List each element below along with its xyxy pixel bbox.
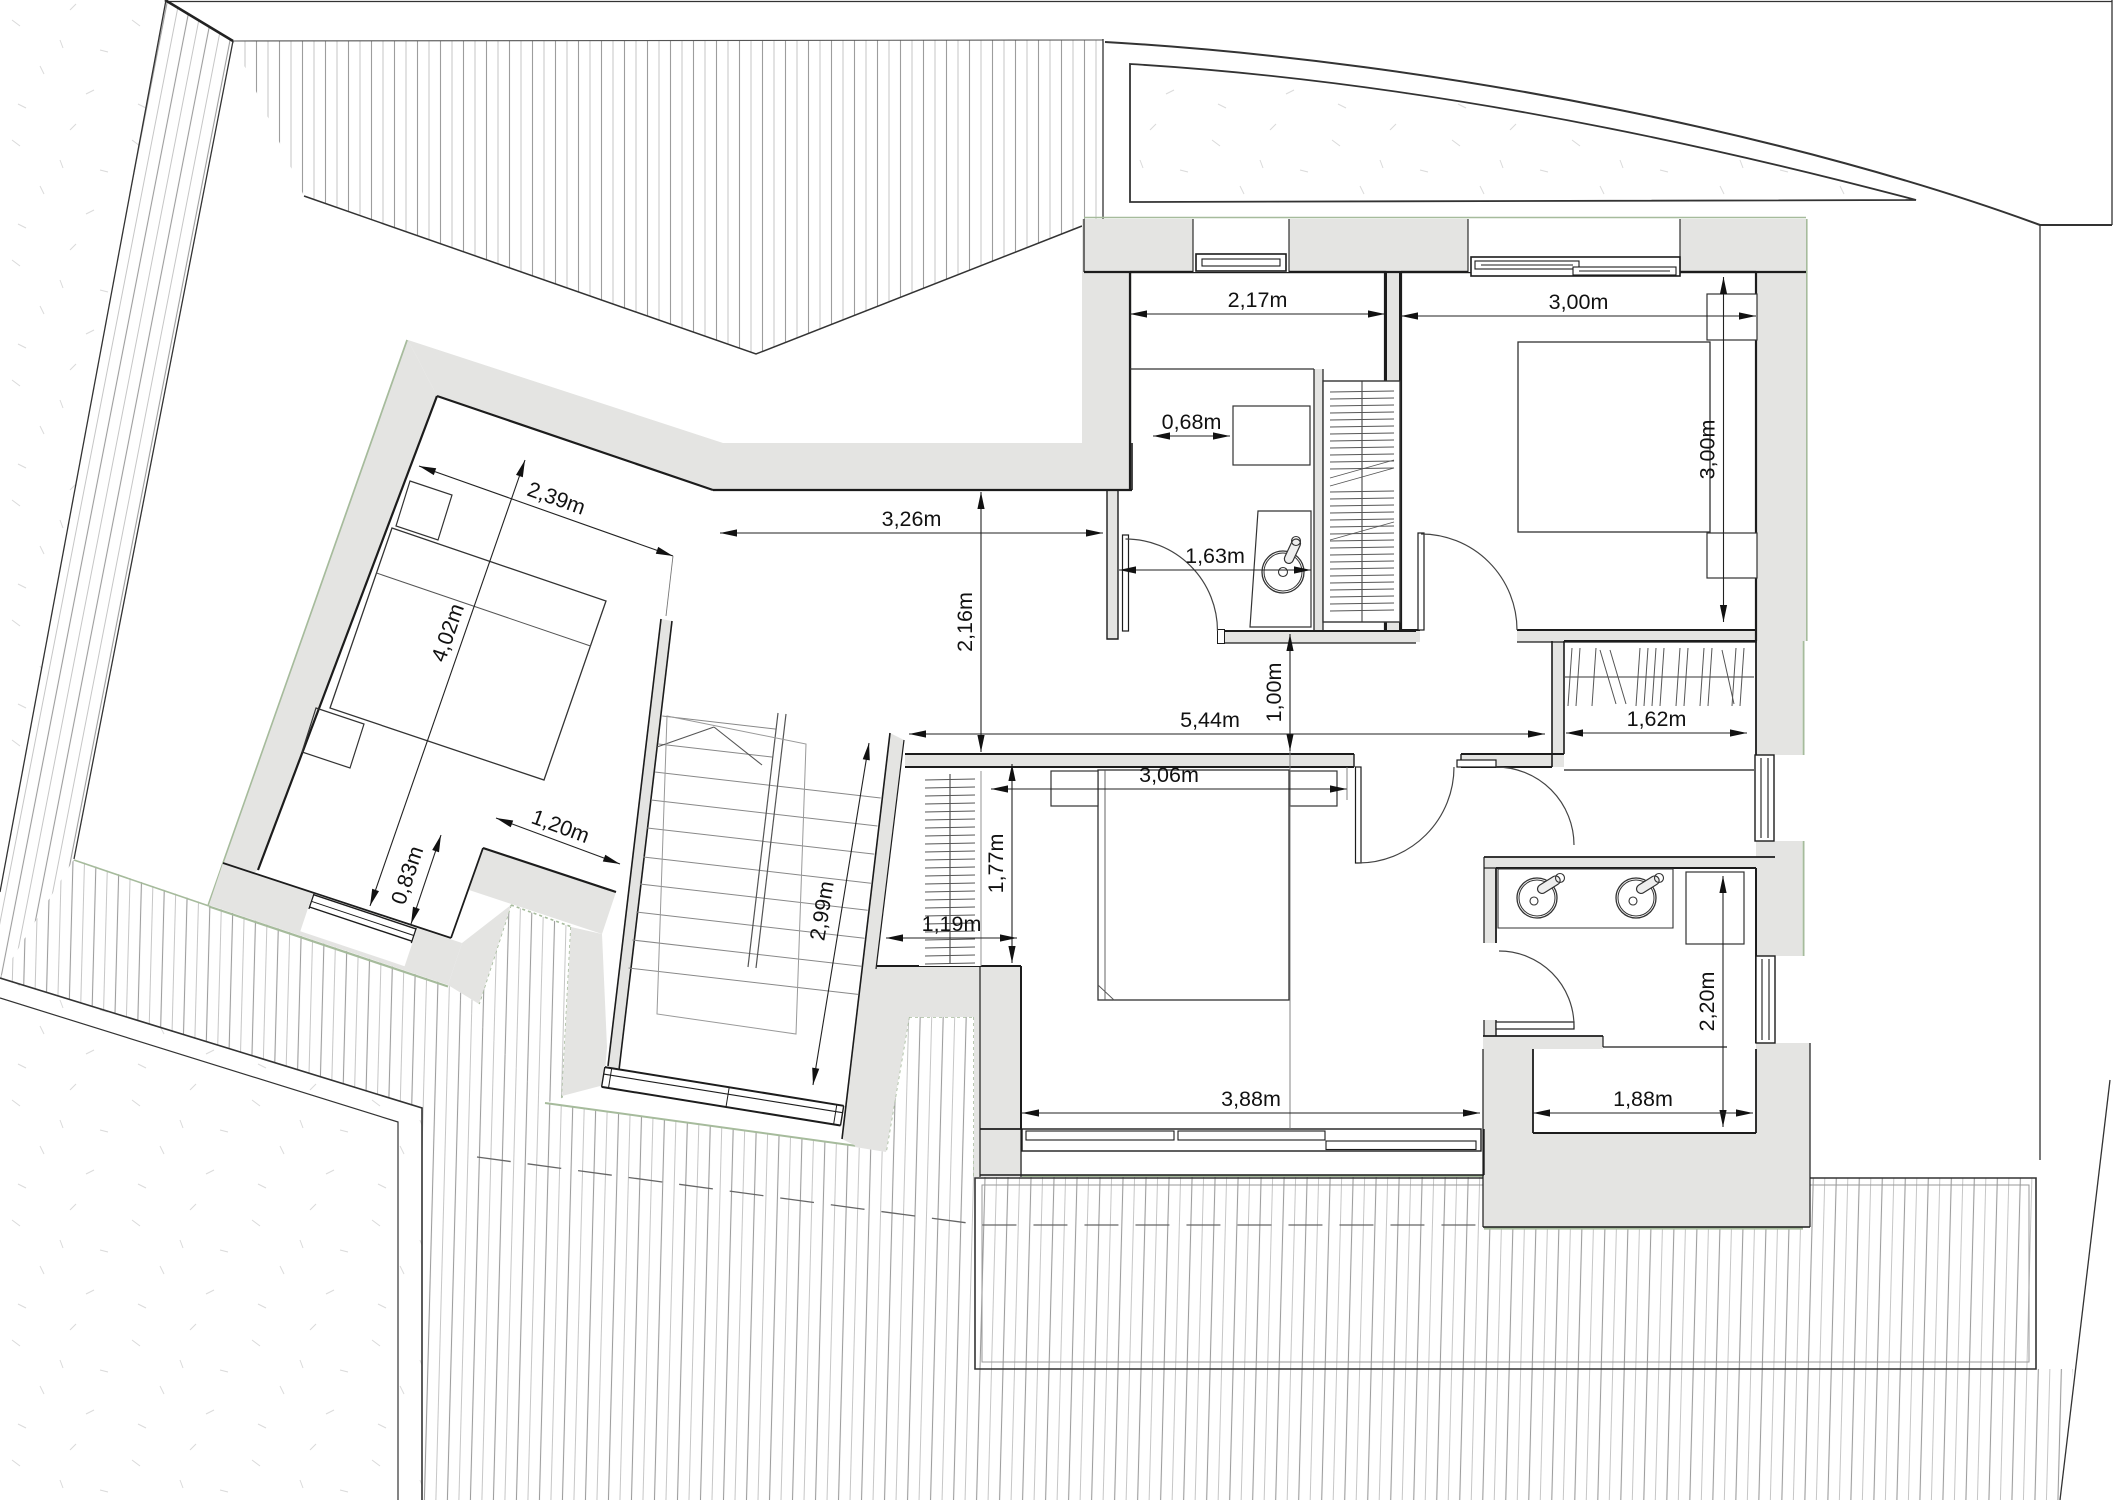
svg-text:1,77m: 1,77m — [984, 834, 1008, 894]
svg-text:1,19m: 1,19m — [922, 912, 982, 936]
svg-text:3,06m: 3,06m — [1139, 763, 1199, 787]
svg-text:1,62m: 1,62m — [1627, 707, 1687, 731]
svg-text:0,68m: 0,68m — [1162, 410, 1222, 434]
svg-text:3,88m: 3,88m — [1221, 1087, 1281, 1111]
svg-text:3,00m: 3,00m — [1696, 420, 1720, 480]
svg-text:1,88m: 1,88m — [1613, 1087, 1673, 1111]
svg-text:3,26m: 3,26m — [882, 507, 942, 531]
svg-text:2,20m: 2,20m — [1695, 972, 1719, 1032]
svg-text:3,00m: 3,00m — [1549, 290, 1609, 314]
svg-text:1,63m: 1,63m — [1185, 544, 1245, 568]
svg-text:2,16m: 2,16m — [953, 592, 977, 652]
svg-text:2,17m: 2,17m — [1228, 288, 1288, 312]
svg-text:5,44m: 5,44m — [1180, 708, 1240, 732]
svg-text:1,00m: 1,00m — [1262, 663, 1286, 723]
